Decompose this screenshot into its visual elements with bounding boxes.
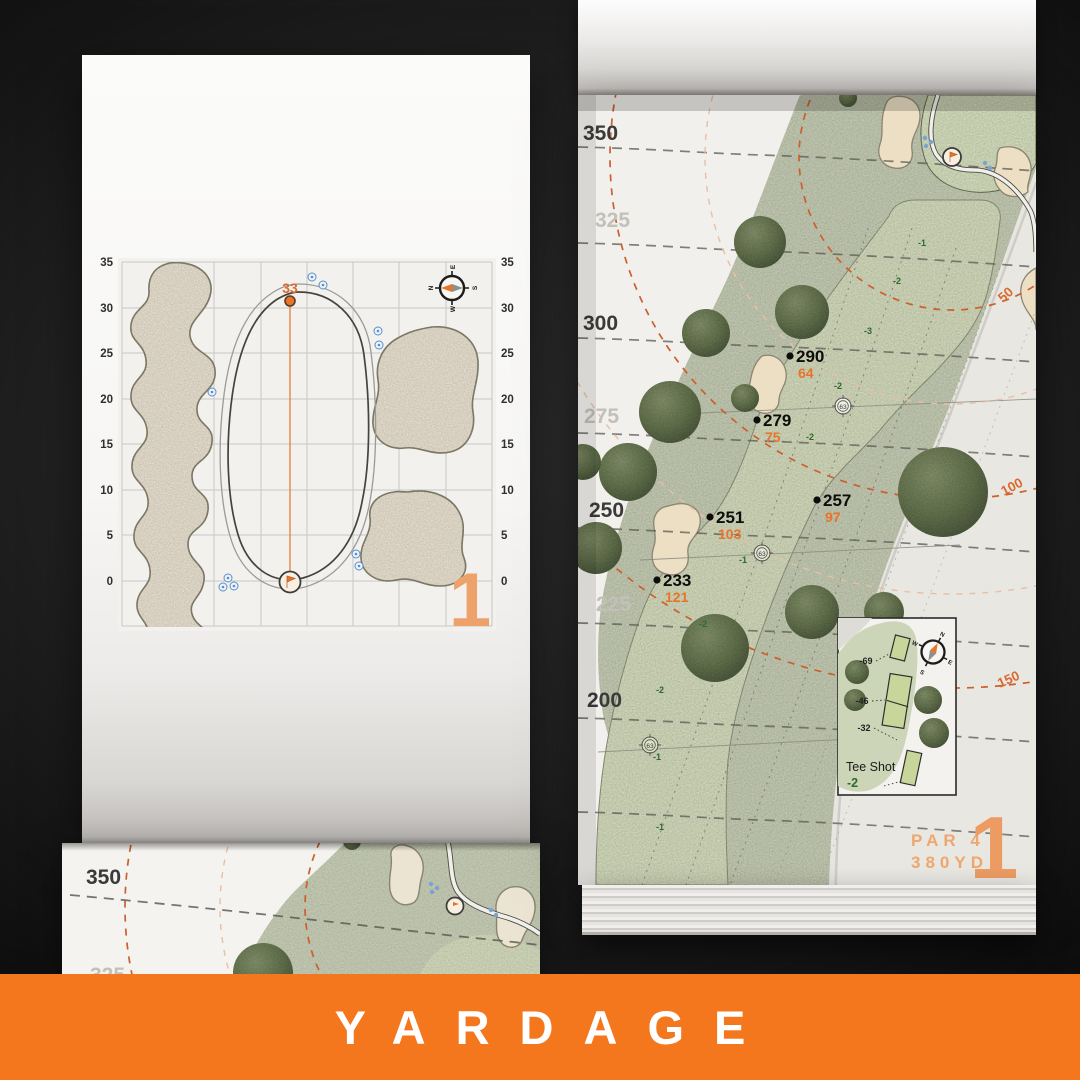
distance-value: 279: [763, 411, 791, 430]
pin-icon: [285, 296, 295, 306]
elevation-label: -2: [834, 381, 842, 391]
flag-icon: [943, 148, 961, 166]
elevation-label: -1: [918, 238, 926, 248]
elevation-label: -1: [739, 555, 747, 565]
compass-w: W: [450, 305, 457, 312]
svg-text:63: 63: [839, 404, 847, 411]
hole-number: 1: [449, 558, 491, 643]
green-map-diagram: 33 35 30 25 20 15 10 5 0 35 30 25 20 15 …: [82, 55, 530, 845]
axis-label: 35: [100, 257, 113, 269]
distance-value: 290: [796, 347, 824, 366]
carry-value: 75: [765, 429, 781, 445]
svg-text:63: 63: [646, 743, 654, 750]
tee-shot-title: Tee Shot: [846, 760, 896, 774]
svg-text:63: 63: [758, 551, 766, 558]
axis-label: 30: [100, 303, 113, 315]
page-stack-edge: [582, 885, 1036, 935]
yardage-book-mockup: 33 35 30 25 20 15 10 5 0 35 30 25 20 15 …: [0, 0, 1080, 1080]
elevation-label: -2: [699, 619, 707, 629]
axis-label: 15: [501, 439, 514, 451]
banner: YARDAGE: [0, 974, 1080, 1080]
flipped-page-edge: [578, 0, 1036, 95]
elevation-label: -1: [656, 822, 664, 832]
yardage-line-label: 225: [596, 593, 631, 616]
tee-distance: -32: [857, 723, 870, 733]
right-page: 50 100 150: [578, 95, 1036, 885]
axis-label: 35: [501, 257, 514, 269]
axis-label: 10: [100, 485, 113, 497]
yardage-line-label: 350: [86, 866, 121, 889]
partial-hole-map: 350 325: [62, 843, 540, 975]
distance-value: 251: [716, 508, 744, 527]
flag-icon: [447, 898, 464, 915]
compass-s: S: [472, 285, 479, 290]
hole-map: 50 100 150: [578, 95, 1036, 885]
banner-title: YARDAGE: [305, 1004, 776, 1051]
distance-value: 233: [663, 571, 691, 590]
yardage-line-label: 325: [595, 209, 630, 232]
carry-value: 103: [718, 526, 742, 542]
tee-shot-inset: -69 -46 -32 Tee Shot -2 N E S: [838, 618, 963, 795]
axis-label: 5: [501, 530, 508, 542]
elevation-label: -2: [893, 276, 901, 286]
axis-label: 25: [100, 348, 113, 360]
axis-label: 5: [107, 530, 114, 542]
axis-label: 25: [501, 348, 514, 360]
axis-label: 20: [100, 394, 113, 406]
axis-label: 30: [501, 303, 514, 315]
axis-label: 0: [501, 576, 507, 588]
elevation-label: -1: [653, 752, 661, 762]
hole-number: 1: [970, 798, 1019, 885]
flag-icon: [280, 572, 301, 593]
tee-elevation: -2: [847, 776, 858, 790]
compass-n: N: [428, 285, 435, 290]
distance-value: 257: [823, 491, 851, 510]
compass-e: E: [450, 264, 457, 269]
pin-distance-label: 33: [282, 280, 298, 296]
tee-distance: -46: [855, 696, 868, 706]
axis-label: 0: [107, 576, 113, 588]
carry-value: 121: [665, 589, 689, 605]
axis-label: 10: [501, 485, 514, 497]
elevation-label: -2: [656, 685, 664, 695]
bottom-left-page: 350 325: [62, 843, 540, 975]
carry-value: 97: [825, 509, 841, 525]
elevation-label: -2: [806, 432, 814, 442]
elevation-label: -3: [864, 326, 872, 336]
tee-distance: -69: [859, 656, 872, 666]
left-page: 33 35 30 25 20 15 10 5 0 35 30 25 20 15 …: [82, 55, 530, 845]
carry-value: 64: [798, 365, 814, 381]
axis-label: 20: [501, 394, 514, 406]
axis-label: 15: [100, 439, 113, 451]
